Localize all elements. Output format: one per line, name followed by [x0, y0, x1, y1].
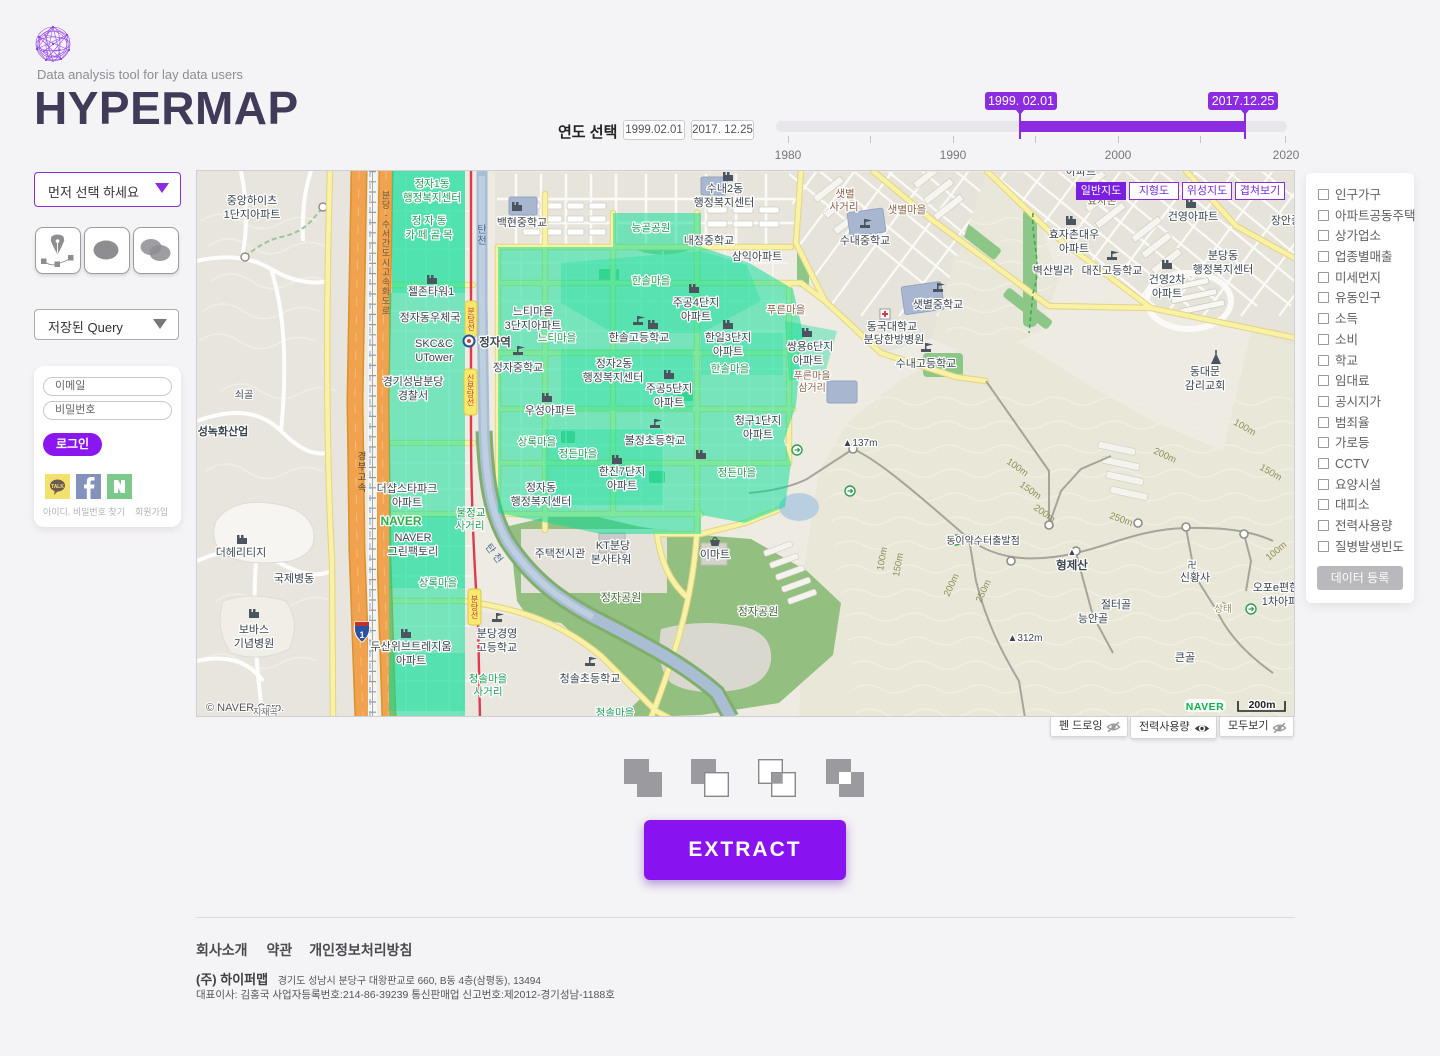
svg-text:청구1단지: 청구1단지 — [735, 414, 782, 427]
svg-text:느티마을: 느티마을 — [513, 305, 553, 318]
svg-text:상태: 상태 — [1214, 604, 1231, 615]
svg-text:卍: 卍 — [1187, 560, 1196, 570]
svg-text:▲: ▲ — [1068, 547, 1077, 557]
svg-text:샛별마을: 샛별마을 — [888, 204, 927, 216]
svg-text:한일3단지: 한일3단지 — [705, 330, 752, 344]
svg-text:대진고등학교: 대진고등학교 — [1082, 264, 1143, 277]
svg-text:능골공원: 능골공원 — [632, 222, 671, 234]
svg-text:정자중학교: 정자중학교 — [493, 361, 544, 374]
svg-text:이마트: 이마트 — [700, 548, 730, 561]
svg-text:탄천: 탄천 — [477, 224, 486, 247]
svg-text:정자동우체국: 정자동우체국 — [400, 311, 461, 324]
svg-text:우성아파트: 우성아파트 — [525, 404, 576, 417]
svg-text:정자동: 정자동 — [526, 481, 556, 494]
svg-text:UTower: UTower — [415, 352, 453, 364]
svg-text:불정초등학교: 불정초등학교 — [625, 434, 686, 447]
svg-text:행정복지센터: 행정복지센터 — [1193, 263, 1254, 276]
svg-text:아파트: 아파트 — [713, 345, 743, 358]
svg-text:분당선: 분당선 — [471, 595, 479, 620]
svg-text:본사타워: 본사타워 — [591, 553, 631, 566]
svg-text:건영아파트: 건영아파트 — [1168, 210, 1219, 223]
svg-text:NAVER: NAVER — [380, 514, 421, 528]
svg-text:주택전시관: 주택전시관 — [535, 547, 586, 560]
svg-text:푸른마을: 푸른마을 — [767, 304, 806, 316]
svg-text:건영2차: 건영2차 — [1149, 273, 1185, 286]
svg-text:아파트: 아파트 — [1152, 287, 1182, 300]
svg-text:형제산: 형제산 — [1056, 558, 1088, 572]
svg-text:젤존타워1: 젤존타워1 — [408, 285, 455, 298]
svg-text:아파트: 아파트 — [681, 310, 711, 323]
svg-text:정자2동: 정자2동 — [596, 357, 632, 370]
svg-text:신황사: 신황사 — [1180, 571, 1210, 584]
svg-text:청솔마을: 청솔마을 — [596, 707, 635, 717]
svg-text:정자공원: 정자공원 — [738, 605, 778, 618]
svg-text:아파트: 아파트 — [793, 354, 823, 367]
svg-text:사거리: 사거리 — [830, 201, 859, 213]
svg-text:동국대학교: 동국대학교 — [867, 320, 918, 333]
svg-text:청솔마을: 청솔마을 — [469, 673, 508, 685]
svg-text:보바스: 보바스 — [239, 623, 269, 636]
svg-text:카 페 골 목: 카 페 골 목 — [405, 229, 453, 241]
svg-text:행정복지센터: 행정복지센터 — [403, 192, 461, 204]
svg-text:KT분당: KT분당 — [596, 539, 630, 552]
svg-text:상록마을: 상록마을 — [419, 577, 458, 589]
svg-text:아파트: 아파트 — [743, 428, 773, 441]
svg-text:기념병원: 기념병원 — [234, 637, 274, 650]
svg-text:지재곡: 지재곡 — [253, 707, 278, 717]
svg-text:3단지아파트: 3단지아파트 — [505, 319, 562, 332]
svg-text:행정복지센터: 행정복지센터 — [511, 495, 572, 508]
svg-text:주공5단지: 주공5단지 — [646, 382, 693, 395]
svg-text:국제병동: 국제병동 — [274, 572, 314, 585]
svg-text:고등학교: 고등학교 — [477, 641, 517, 654]
svg-text:분당경영: 분당경영 — [477, 627, 517, 640]
svg-text:분당동: 분당동 — [1208, 249, 1238, 262]
svg-text:샛별: 샛별 — [835, 188, 854, 200]
svg-text:SKC&C: SKC&C — [415, 338, 453, 350]
svg-text:정자역: 정자역 — [479, 335, 511, 349]
svg-text:한솔마을: 한솔마을 — [711, 363, 750, 375]
svg-text:백현중학교: 백현중학교 — [497, 216, 548, 229]
svg-text:쇠골: 쇠골 — [235, 389, 253, 401]
svg-text:쌍용6단지: 쌍용6단지 — [787, 340, 834, 353]
svg-text:청솔초등학교: 청솔초등학교 — [560, 672, 621, 685]
svg-text:1차아파: 1차아파 — [1262, 595, 1295, 608]
svg-text:아파트: 아파트 — [654, 396, 684, 409]
svg-text:1단지아파트: 1단지아파트 — [224, 208, 281, 221]
svg-text:정 자 동: 정 자 동 — [412, 215, 447, 227]
svg-text:능안골: 능안골 — [1078, 612, 1108, 625]
svg-text:느티마을: 느티마을 — [538, 332, 577, 344]
svg-text:수내2동: 수내2동 — [707, 182, 743, 195]
svg-text:절터골: 절터골 — [1101, 598, 1131, 611]
svg-text:삼익아파트: 삼익아파트 — [732, 250, 783, 263]
svg-text:NAVER: NAVER — [394, 532, 431, 544]
svg-text:정자1동: 정자1동 — [415, 178, 450, 190]
svg-text:경찰서: 경찰서 — [398, 389, 428, 402]
svg-text:1: 1 — [359, 630, 364, 640]
svg-text:200m: 200m — [1249, 699, 1276, 711]
svg-text:더샵스타파크: 더샵스타파크 — [377, 482, 438, 495]
svg-text:수내중학교: 수내중학교 — [840, 234, 891, 247]
svg-text:한솔고등학교: 한솔고등학교 — [609, 331, 670, 344]
svg-text:아파트: 아파트 — [1059, 242, 1089, 255]
svg-text:신분당선: 신분당선 — [467, 374, 475, 407]
svg-text:경부고속: 경부고속 — [358, 451, 367, 495]
svg-text:한진7단지: 한진7단지 — [599, 465, 646, 478]
svg-text:성녹화산업: 성녹화산업 — [198, 424, 249, 438]
svg-text:▲137m: ▲137m — [843, 438, 878, 449]
svg-text:동이약수터출발점: 동이약수터출발점 — [946, 535, 1020, 547]
svg-text:사거리: 사거리 — [474, 686, 503, 698]
svg-text:행정복지센터: 행정복지센터 — [583, 371, 644, 384]
svg-text:한솔마을: 한솔마을 — [632, 275, 671, 287]
svg-text:아파트: 아파트 — [1066, 171, 1096, 178]
svg-text:중앙하이츠: 중앙하이츠 — [227, 193, 278, 207]
svg-text:푸른마을: 푸른마을 — [794, 370, 831, 382]
svg-text:큰골: 큰골 — [1175, 651, 1195, 664]
svg-text:감리교회: 감리교회 — [1185, 379, 1225, 392]
svg-text:정자공원: 정자공원 — [601, 591, 641, 604]
svg-text:오포e편한: 오포e편한 — [1253, 581, 1295, 594]
svg-text:불정교: 불정교 — [457, 507, 486, 519]
svg-text:▲312m: ▲312m — [1008, 633, 1043, 644]
svg-text:효자촌대우: 효자촌대우 — [1049, 228, 1100, 241]
svg-text:사거리: 사거리 — [456, 520, 485, 532]
svg-text:상록마을: 상록마을 — [518, 436, 557, 448]
svg-text:정든마을: 정든마을 — [559, 448, 598, 460]
svg-text:정든마을: 정든마을 — [718, 467, 757, 479]
svg-text:NAVER: NAVER — [1186, 701, 1224, 713]
svg-text:분당한방병원: 분당한방병원 — [864, 333, 925, 346]
svg-text:삼거리: 삼거리 — [798, 382, 826, 394]
svg-text:샛별중학교: 샛별중학교 — [913, 298, 964, 311]
svg-text:TALK: TALK — [51, 484, 64, 490]
svg-text:수내고등학교: 수내고등학교 — [896, 357, 957, 370]
svg-text:아파트: 아파트 — [392, 496, 422, 509]
svg-text:분당선: 분당선 — [467, 307, 475, 332]
svg-text:벽산빌라: 벽산빌라 — [1033, 264, 1073, 277]
svg-text:동대문: 동대문 — [1190, 365, 1220, 378]
svg-text:내정중학교: 내정중학교 — [684, 234, 735, 247]
svg-text:경기성남분당: 경기성남분당 — [383, 375, 444, 388]
svg-text:분당-수서간도시고속화도로: 분당-수서간도시고속화도로 — [382, 191, 390, 316]
svg-text:장안중: 장안중 — [1271, 214, 1295, 227]
svg-text:그린팩토리: 그린팩토리 — [388, 545, 439, 558]
svg-text:두산위브트레지움: 두산위브트레지움 — [371, 640, 452, 653]
svg-text:더헤리티지: 더헤리티지 — [216, 546, 267, 559]
svg-text:행정복지센터: 행정복지센터 — [694, 196, 755, 209]
svg-text:아파트: 아파트 — [396, 654, 426, 667]
svg-text:주공4단지: 주공4단지 — [673, 296, 720, 309]
svg-text:아파트: 아파트 — [607, 479, 637, 492]
